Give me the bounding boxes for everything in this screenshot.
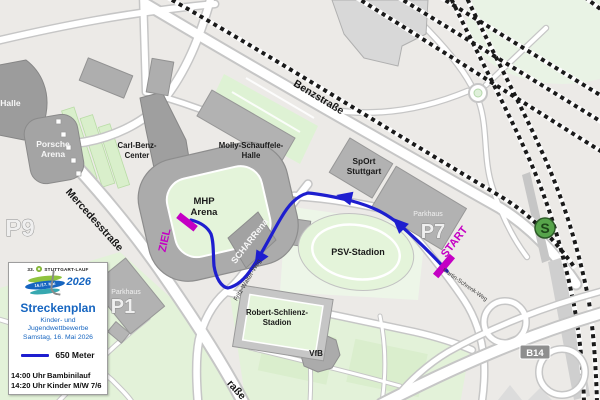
b14-road-badge: B14 — [520, 345, 550, 359]
label-porsche-arena-2: Arena — [41, 149, 65, 159]
label-mhp-arena-2: Arena — [191, 207, 219, 218]
label-sport-stuttgart-2: Stuttgart — [347, 166, 382, 176]
legend-subtitle-1: Kinder- und Jugendwettbewerbe — [11, 317, 105, 334]
label-porsche-arena-1: Porsche — [36, 139, 70, 149]
label-psv-stadion: PSV-Stadion — [331, 247, 385, 257]
label-vfb: VfB — [309, 349, 323, 358]
label-p7-code: P7 — [421, 221, 445, 243]
label-mhp-arena-1: MHP — [193, 196, 215, 207]
label-carl-benz-center-2: Center — [125, 151, 150, 160]
label-molly-schauffele-1: Molly-Schauffele- — [219, 141, 284, 150]
logo-year: 2026 — [67, 276, 91, 288]
daisy-icon — [36, 266, 42, 272]
route-line-sample — [21, 354, 49, 357]
schedule-event: Bambinilauf — [47, 371, 90, 381]
label-carl-benz-center-1: Carl-Benz- — [118, 141, 157, 150]
label-molly-schauffele-2: Halle — [242, 151, 261, 160]
route-map: Benzstraße Mercedesstraße raße Fritz-Wal… — [0, 0, 600, 400]
schedule-event: Kinder M/W 7/6 — [47, 381, 101, 391]
label-parkhaus-p7: Parkhaus — [413, 211, 443, 218]
runner-icon — [49, 270, 63, 295]
label-robert-schlienz-2: Stadion — [263, 318, 292, 327]
legend-box: 33. STUTTGART-LAUF 16./17. Mai 2026 Stre… — [8, 262, 108, 395]
sbahn-icon: S — [540, 220, 549, 236]
schedule-time: 14:20 Uhr — [11, 381, 47, 391]
label-robert-schlienz-1: Robert-Schlienz- — [246, 308, 308, 317]
schedule-row: 14:20 Uhr Kinder M/W 7/6 — [11, 381, 105, 391]
schedule: 14:00 Uhr Bambinilauf 14:20 Uhr Kinder M… — [11, 371, 105, 391]
label-schleyer-halle: -Halle — [0, 98, 21, 108]
label-parkhaus-p1: Parkhaus — [111, 289, 141, 296]
logo-name: STUTTGART-LAUF — [44, 267, 88, 272]
legend-title: Streckenplan — [20, 301, 95, 315]
logo-swoosh: 16./17. Mai — [25, 275, 65, 295]
label-sport-stuttgart-1: SpOrt — [352, 156, 375, 166]
distance-row: 650 Meter — [21, 350, 94, 360]
stuttgart-lauf-logo: 33. STUTTGART-LAUF 16./17. Mai 2026 — [23, 266, 93, 296]
logo-edition: 33. — [27, 267, 34, 272]
label-p1-code: P1 — [111, 296, 135, 318]
sbahn-station-marker: S — [535, 218, 555, 238]
b14-badge-text: B14 — [526, 348, 544, 359]
schedule-row: 14:00 Uhr Bambinilauf — [11, 371, 105, 381]
distance-label: 650 Meter — [55, 350, 94, 360]
label-p9-code: P9 — [5, 215, 34, 242]
legend-subtitle-2: Samstag, 16. Mai 2026 — [23, 334, 93, 342]
schedule-time: 14:00 Uhr — [11, 371, 47, 381]
roundabout — [469, 84, 487, 102]
